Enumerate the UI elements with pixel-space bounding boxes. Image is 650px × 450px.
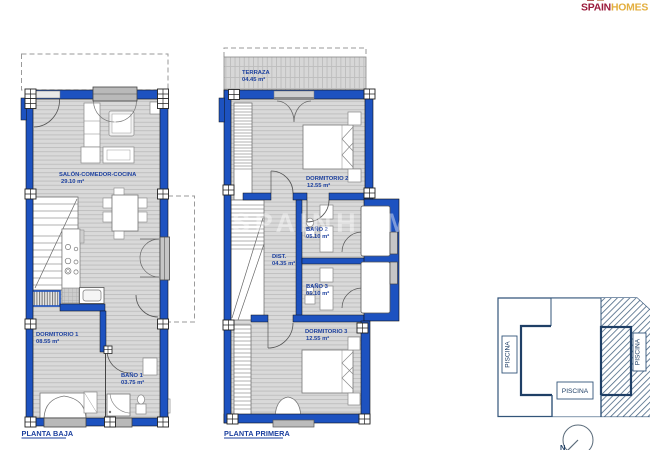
svg-text:PISCINA: PISCINA bbox=[562, 388, 589, 395]
svg-text:PLANTA PRIMERA: PLANTA PRIMERA bbox=[224, 429, 290, 438]
svg-text:PISCINA: PISCINA bbox=[505, 341, 512, 368]
svg-text:12.55 m²: 12.55 m² bbox=[307, 182, 330, 189]
svg-text:12.55 m²: 12.55 m² bbox=[306, 335, 329, 342]
svg-text:TERRAZA: TERRAZA bbox=[242, 70, 271, 76]
svg-text:SPAINHOMES: SPAINHOMES bbox=[581, 3, 648, 14]
svg-text:29.10 m²: 29.10 m² bbox=[61, 178, 84, 185]
svg-text:SALÓN-COMEDOR-COCINA: SALÓN-COMEDOR-COCINA bbox=[59, 170, 137, 178]
svg-text:BAÑO 3: BAÑO 3 bbox=[306, 283, 329, 290]
svg-text:04.35 m²: 04.35 m² bbox=[272, 260, 295, 267]
svg-text:03.75 m²: 03.75 m² bbox=[121, 379, 144, 386]
svg-text:DORMITORIO 3: DORMITORIO 3 bbox=[305, 329, 348, 335]
svg-text:05.10 m²: 05.10 m² bbox=[306, 290, 329, 297]
svg-text:BAÑO 1: BAÑO 1 bbox=[121, 372, 144, 379]
svg-text:DIST.: DIST. bbox=[272, 254, 287, 260]
svg-text:PISCINA: PISCINA bbox=[635, 338, 642, 365]
svg-text:PLANTA BAJA: PLANTA BAJA bbox=[22, 429, 74, 438]
svg-text:08.55 m²: 08.55 m² bbox=[36, 338, 59, 345]
svg-text:N: N bbox=[560, 443, 565, 450]
svg-text:04.45 m²: 04.45 m² bbox=[242, 76, 265, 83]
svg-text:DORMITORIO 2: DORMITORIO 2 bbox=[306, 176, 348, 182]
svg-text:DORMITORIO 1: DORMITORIO 1 bbox=[36, 332, 79, 338]
svg-text:SPAINHOMES: SPAINHOMES bbox=[232, 208, 460, 238]
